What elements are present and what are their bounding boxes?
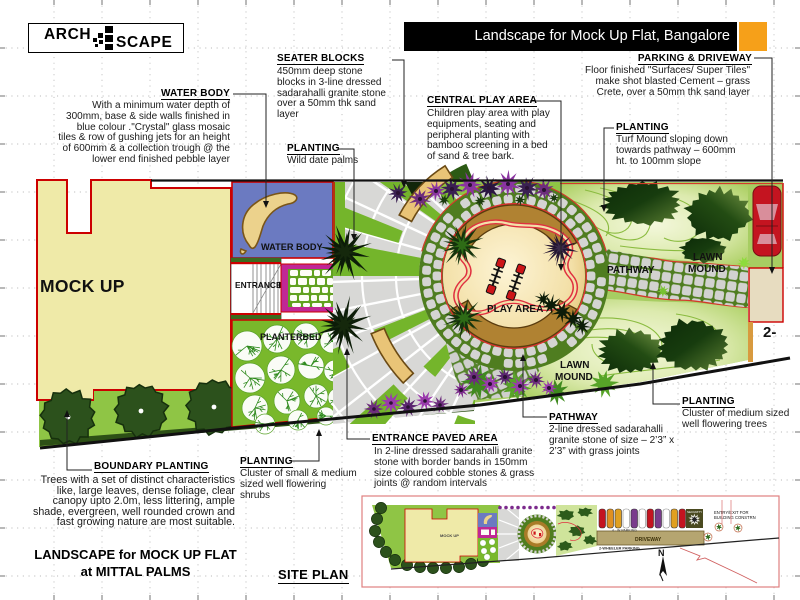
svg-text:LAWN: LAWN xyxy=(560,360,589,371)
svg-text:LAWN: LAWN xyxy=(693,252,722,263)
svg-text:MOCK UP: MOCK UP xyxy=(440,533,459,538)
svg-text:MOUND: MOUND xyxy=(555,372,593,383)
svg-text:WATER BODY: WATER BODY xyxy=(261,242,323,252)
svg-text:BUILDING CONSTRN: BUILDING CONSTRN xyxy=(714,515,756,520)
svg-text:MOCK UP: MOCK UP xyxy=(40,276,125,296)
svg-text:N: N xyxy=(658,548,665,558)
svg-text:2-: 2- xyxy=(763,324,776,341)
svg-text:4 - W PARKING: 4 - W PARKING xyxy=(612,529,637,533)
svg-text:PLANTERBED: PLANTERBED xyxy=(260,332,322,342)
svg-text:PATHWAY: PATHWAY xyxy=(607,265,655,276)
svg-text:MOUND: MOUND xyxy=(688,264,726,275)
svg-text:PLAY AREA: PLAY AREA xyxy=(487,304,543,315)
svg-text:DRIVEWAY: DRIVEWAY xyxy=(635,537,662,543)
svg-text:SECURITY: SECURITY xyxy=(687,510,702,514)
svg-text:ENTRANCE: ENTRANCE xyxy=(235,280,282,290)
